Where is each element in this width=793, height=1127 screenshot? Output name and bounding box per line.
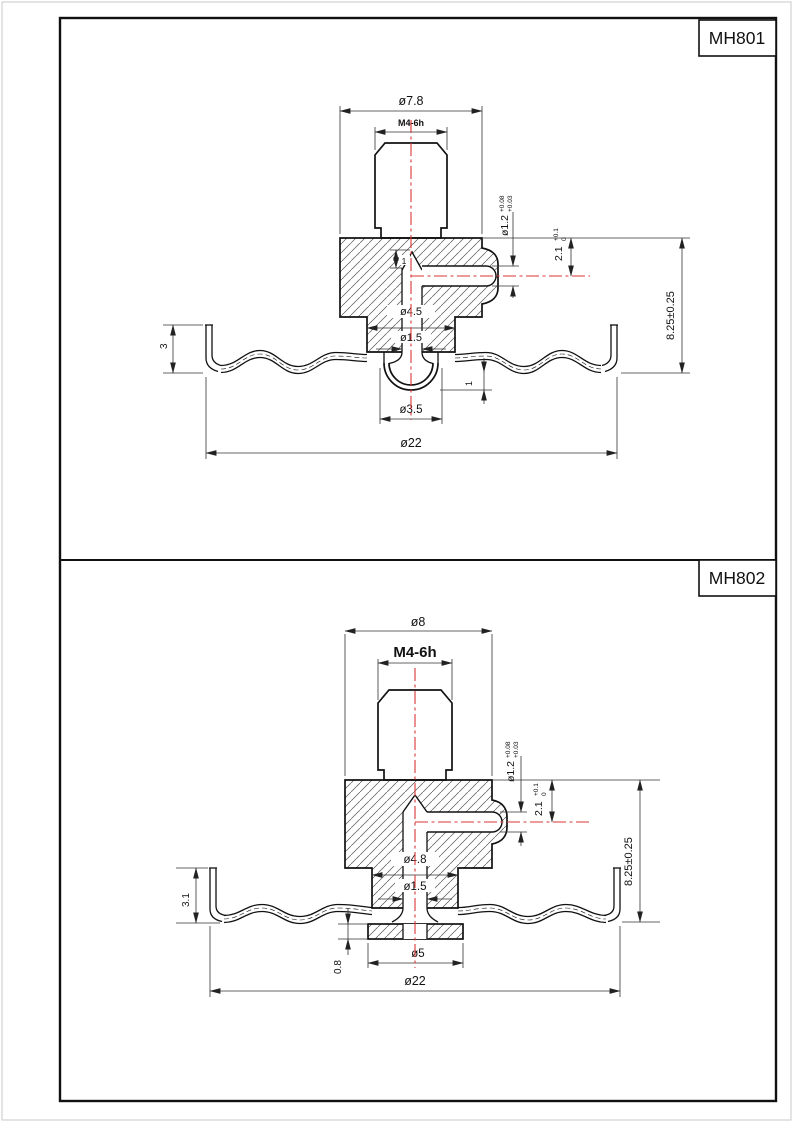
svg-text:2.1: 2.1 bbox=[553, 246, 565, 261]
svg-text:1: 1 bbox=[464, 381, 474, 386]
svg-text:3: 3 bbox=[159, 343, 170, 349]
svg-text:+0.03: +0.03 bbox=[513, 741, 520, 758]
svg-text:0: 0 bbox=[561, 237, 568, 241]
mh801-dim-cone-depth: 1 bbox=[402, 256, 407, 266]
svg-text:ø1.2: ø1.2 bbox=[499, 215, 511, 236]
mh802-dim-thread: M4-6h bbox=[393, 644, 436, 661]
svg-text:0.8: 0.8 bbox=[333, 960, 344, 974]
svg-text:+0.08: +0.08 bbox=[505, 741, 512, 758]
title-block-mh802: MH802 bbox=[699, 560, 776, 596]
mh802-dim-overall-height: 8.25±0.25 bbox=[623, 837, 635, 886]
mh802-dim-hub-dia: ø8 bbox=[411, 615, 426, 629]
svg-text:+0.03: +0.03 bbox=[507, 195, 514, 212]
mh801-dim-pin-depth: 2.1 +0.1 0 bbox=[553, 228, 568, 261]
mh802-dim-boss-height: 0.8 bbox=[333, 960, 344, 974]
svg-text:3.1: 3.1 bbox=[181, 893, 192, 907]
title-mh802: MH802 bbox=[709, 568, 765, 588]
mh801-dim-hub-dia: ø7.8 bbox=[398, 94, 423, 108]
svg-text:ø1.2: ø1.2 bbox=[505, 761, 517, 782]
mh801-dim-disc-dia: ø22 bbox=[400, 436, 422, 450]
mh801-dim-rim-height: 3 bbox=[159, 343, 170, 349]
mh802-dim-pin-depth: 2.1 +0.1 0 bbox=[533, 783, 548, 816]
mh802-dim-pin-hole: ø1.2 +0.08 +0.03 bbox=[505, 741, 520, 782]
mh801-dim-pin-hole: ø1.2 +0.08 +0.03 bbox=[499, 195, 514, 236]
mh802-dim-disc-dia: ø22 bbox=[404, 974, 426, 988]
svg-text:+0.08: +0.08 bbox=[499, 195, 506, 212]
svg-text:+0.1: +0.1 bbox=[553, 228, 560, 241]
svg-text:8.25±0.25: 8.25±0.25 bbox=[665, 291, 677, 340]
title-mh801: MH801 bbox=[709, 28, 765, 48]
svg-text:0: 0 bbox=[541, 792, 548, 796]
sheet-svg: MH801 MH802 bbox=[0, 0, 793, 1122]
svg-text:+0.1: +0.1 bbox=[533, 783, 540, 796]
svg-text:2.1: 2.1 bbox=[533, 801, 545, 816]
mh801-dim-dome-offset: 1 bbox=[464, 381, 474, 386]
svg-text:8.25±0.25: 8.25±0.25 bbox=[623, 837, 635, 886]
mh802-dim-rim-height: 3.1 bbox=[181, 893, 192, 907]
mh801-dim-overall-height: 8.25±0.25 bbox=[665, 291, 677, 340]
mh802-dim-boss-dia: ø5 bbox=[411, 948, 424, 960]
title-block-mh801: MH801 bbox=[699, 20, 776, 56]
